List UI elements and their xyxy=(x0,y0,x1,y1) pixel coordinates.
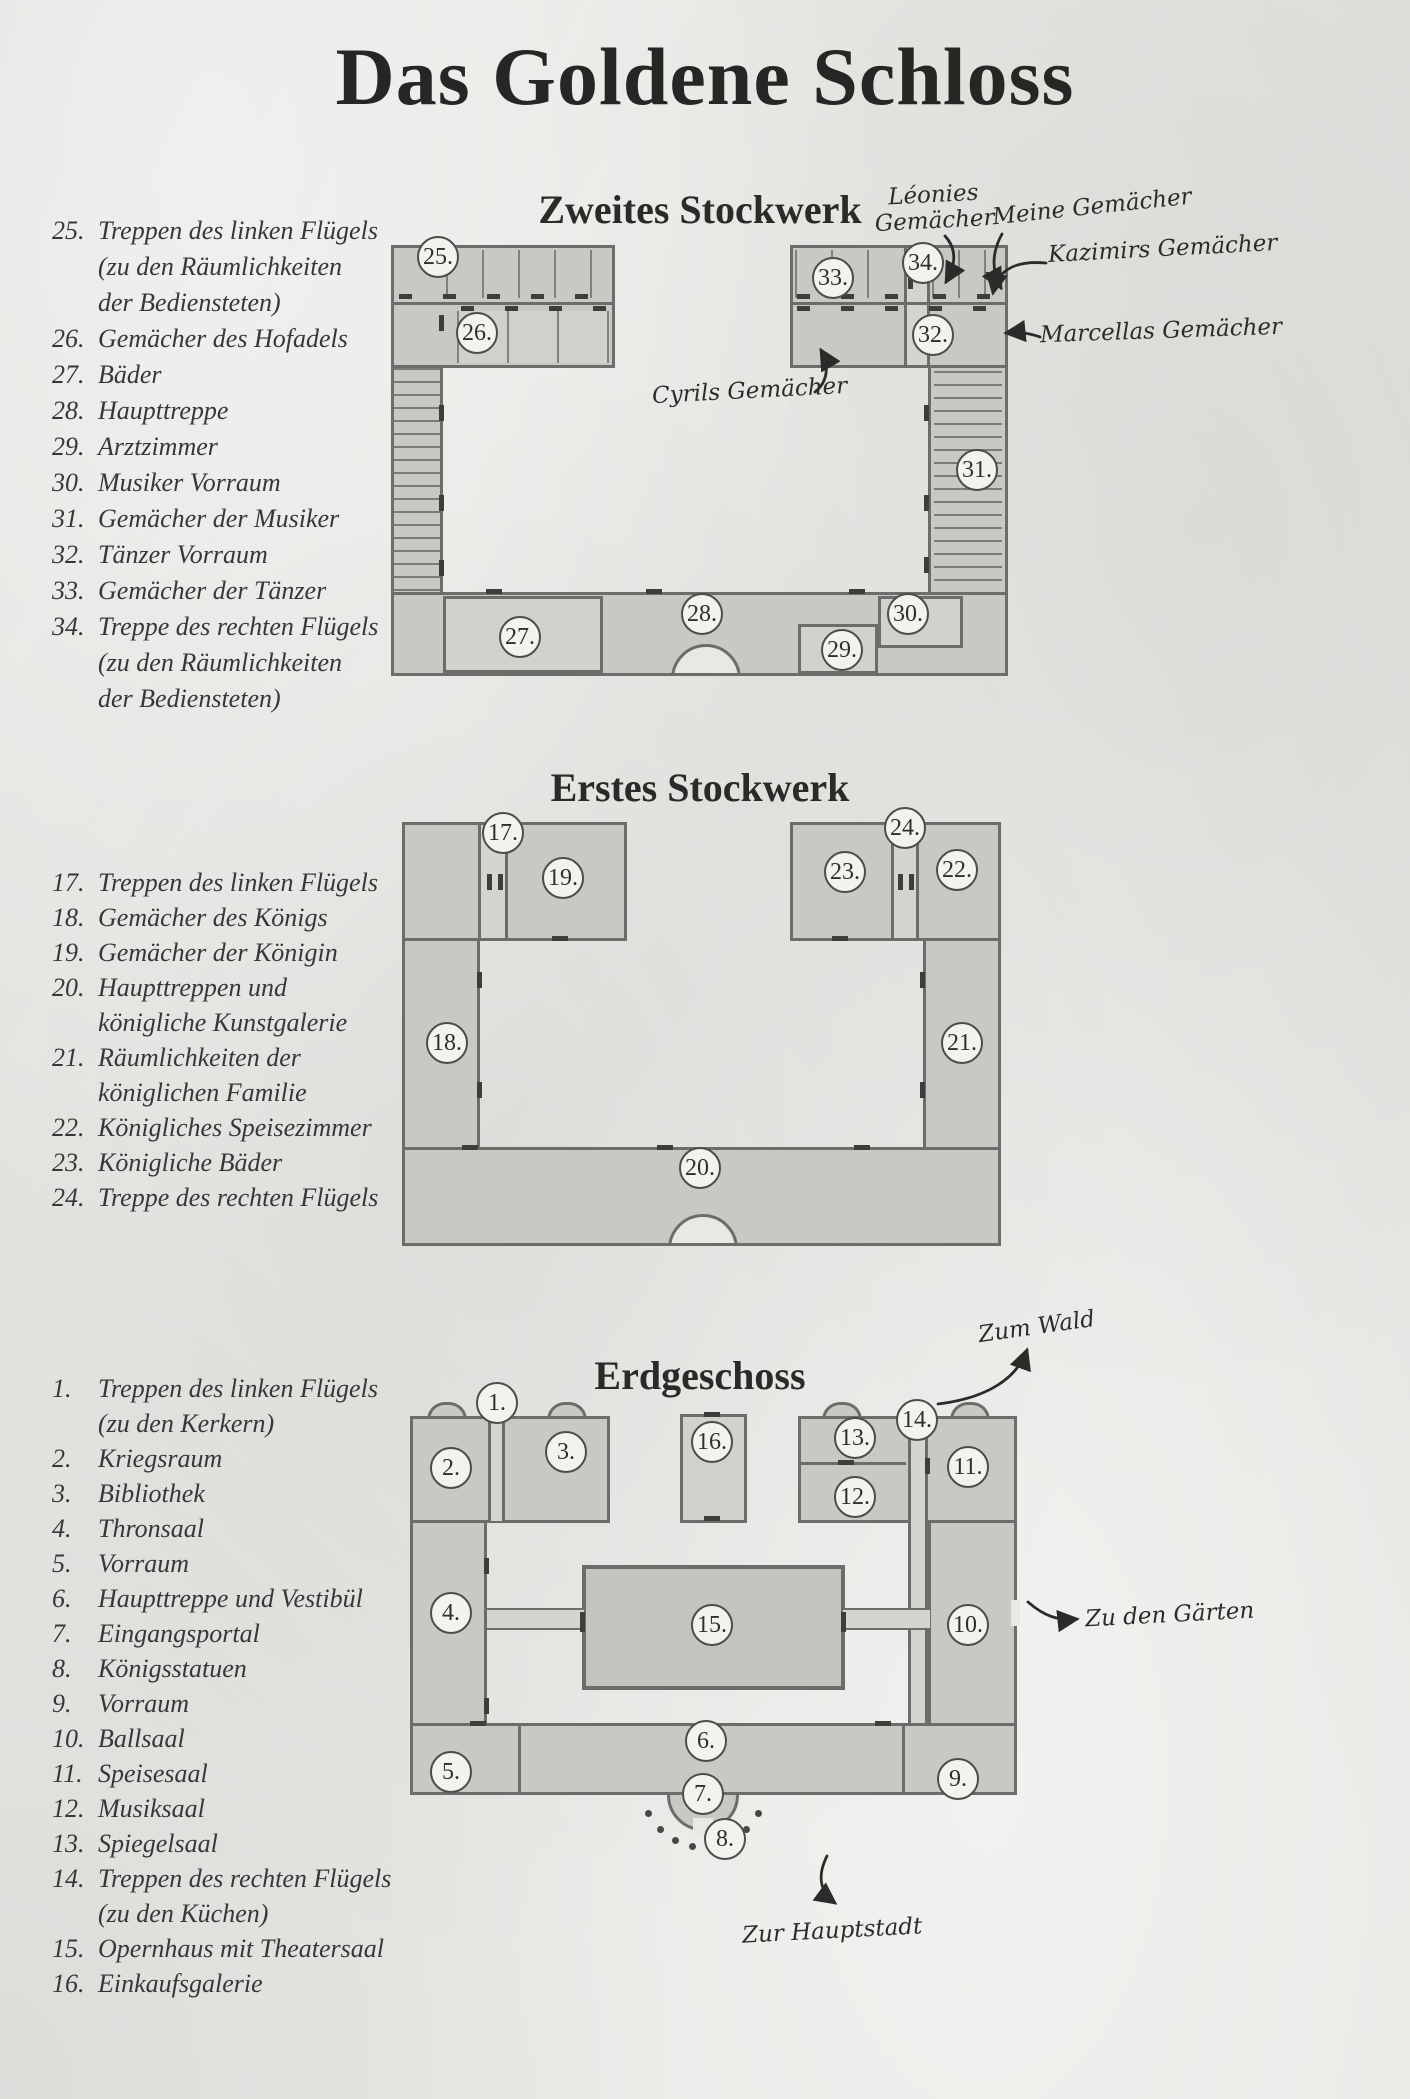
legend-item-number: 33. xyxy=(52,576,98,606)
legend-item-number: 26. xyxy=(52,324,98,354)
room-marker-23: 23. xyxy=(824,851,866,893)
legend-item: 1. Treppen des linken Flügels xyxy=(52,1374,391,1409)
door-marker xyxy=(477,972,482,988)
legend-item-number: 8. xyxy=(52,1654,98,1684)
legend-item: (zu den Küchen) xyxy=(52,1899,391,1934)
legend-item-label: Vorraum xyxy=(98,1549,189,1579)
east-corridor xyxy=(843,1608,930,1630)
legend-item: 22. Königliches Speisezimmer xyxy=(52,1113,378,1148)
legend-item: 8. Königsstatuen xyxy=(52,1654,391,1689)
room-marker-2: 2. xyxy=(430,1447,472,1489)
room-marker-28: 28. xyxy=(681,593,723,635)
legend-item: 15. Opernhaus mit Theatersaal xyxy=(52,1934,391,1969)
door-marker xyxy=(920,972,925,988)
room-marker-10: 10. xyxy=(947,1604,989,1646)
legend-item-label: Vorraum xyxy=(98,1689,189,1719)
annotation-line: Gemächer xyxy=(872,205,997,237)
arch-opening xyxy=(671,644,741,676)
legend-item-number: 18. xyxy=(52,903,98,933)
floor-plan-ground: 1. 2. 3. 4. 5. 6. 7. 8. 9. 10. 11. 12. 1… xyxy=(410,1398,1017,1858)
legend-item-label: Haupttreppe und Vestibül xyxy=(98,1584,363,1614)
room-marker-29: 29. xyxy=(821,629,863,671)
legend-item: 34. Treppe des rechten Flügels xyxy=(52,612,378,648)
floor-title-ground: Erdgeschoss xyxy=(594,1352,805,1399)
statue-dot xyxy=(645,1810,652,1817)
legend-item-label: Bibliothek xyxy=(98,1479,205,1509)
annotation-zu-den-gaerten: Zu den Gärten xyxy=(1084,1598,1254,1633)
door-marker xyxy=(925,1458,930,1474)
door-marker xyxy=(875,1721,891,1726)
room-marker-7: 7. xyxy=(682,1773,724,1815)
legend-item-number: 22. xyxy=(52,1113,98,1143)
legend-item-number: 12. xyxy=(52,1794,98,1824)
statue-dot xyxy=(755,1810,762,1817)
legend-item-label: Gemächer des Königs xyxy=(98,903,328,933)
door-marker xyxy=(484,1558,489,1574)
legend-item-number: 27. xyxy=(52,360,98,390)
legend-item-label: Spiegelsaal xyxy=(98,1829,218,1859)
door-marker xyxy=(841,1612,846,1632)
legend-item-label: königlichen Familie xyxy=(98,1078,307,1108)
legend-item: 3. Bibliothek xyxy=(52,1479,391,1514)
legend-item-label: Treppen des linken Flügels xyxy=(98,216,378,246)
door-marker xyxy=(704,1516,720,1521)
legend-item-label: Gemächer der Musiker xyxy=(98,504,339,534)
legend-item-label: Ballsaal xyxy=(98,1724,185,1754)
room-marker-32: 32. xyxy=(912,314,954,356)
room-marker-14: 14. xyxy=(896,1399,938,1441)
room-marker-11: 11. xyxy=(947,1446,989,1488)
room-marker-8: 8. xyxy=(704,1818,746,1860)
door-markers-row xyxy=(461,306,609,311)
legend-item-label: Kriegsraum xyxy=(98,1444,222,1474)
legend-item: der Bediensteten) xyxy=(52,288,378,324)
door-marker xyxy=(486,589,502,594)
garden-door-opening xyxy=(1011,1600,1020,1626)
legend-item-number: 16. xyxy=(52,1969,98,1999)
legend-item-number: 32. xyxy=(52,540,98,570)
legend-item-number: 29. xyxy=(52,432,98,462)
door-marker xyxy=(439,560,444,576)
legend-item-label: (zu den Räumlichkeiten xyxy=(98,252,342,282)
room-marker-21: 21. xyxy=(941,1022,983,1064)
legend-item-number: 2. xyxy=(52,1444,98,1474)
legend-item-number: 31. xyxy=(52,504,98,534)
legend-item-number: 15. xyxy=(52,1934,98,1964)
statue-dot xyxy=(657,1826,664,1833)
legend-item-label: königliche Kunstgalerie xyxy=(98,1008,347,1038)
annotation-meine-gemaecher: Meine Gemächer xyxy=(991,184,1193,231)
legend-item-label: (zu den Räumlichkeiten xyxy=(98,648,342,678)
room-marker-15: 15. xyxy=(691,1604,733,1646)
legend-item: (zu den Räumlichkeiten xyxy=(52,648,378,684)
door-markers-row xyxy=(797,306,1001,311)
legend-item: 23. Königliche Bäder xyxy=(52,1148,378,1183)
interior-wall xyxy=(793,302,1005,305)
door-marker xyxy=(552,936,568,941)
legend-item-label: Gemächer der Tänzer xyxy=(98,576,326,606)
annotation-leonies-gemaecher: Léonies Gemächer xyxy=(871,179,998,237)
room-marker-3: 3. xyxy=(545,1431,587,1473)
room-marker-17: 17. xyxy=(482,812,524,854)
legend-item-number: 19. xyxy=(52,938,98,968)
door-marker xyxy=(924,495,929,511)
door-markers-row xyxy=(797,294,901,299)
legend-item: 11. Speisesaal xyxy=(52,1759,391,1794)
legend-item: 17. Treppen des linken Flügels xyxy=(52,868,378,903)
legend-item: 31. Gemächer der Musiker xyxy=(52,504,378,540)
legend-item-number: 24. xyxy=(52,1183,98,1213)
room-marker-12: 12. xyxy=(834,1476,876,1518)
room-marker-20: 20. xyxy=(679,1147,721,1189)
legend-item: 20. Haupttreppen und xyxy=(52,973,378,1008)
legend-item: 28. Haupttreppe xyxy=(52,396,378,432)
room-marker-5: 5. xyxy=(430,1751,472,1793)
annotation-kazimirs-gemaecher: Kazimirs Gemächer xyxy=(1047,230,1277,268)
legend-item-number: 17. xyxy=(52,868,98,898)
legend-item-number: 4. xyxy=(52,1514,98,1544)
legend-item-label: Einkaufsgalerie xyxy=(98,1969,263,1999)
room-marker-31: 31. xyxy=(956,449,998,491)
door-marker xyxy=(920,1082,925,1098)
legend-item-number: 21. xyxy=(52,1043,98,1073)
legend-item-label: Opernhaus mit Theatersaal xyxy=(98,1934,384,1964)
room-marker-18: 18. xyxy=(426,1022,468,1064)
legend-item-number: 28. xyxy=(52,396,98,426)
legend-item: 33. Gemächer der Tänzer xyxy=(52,576,378,612)
legend-ground-floor: 1. Treppen des linken Flügels (zu den Ke… xyxy=(52,1374,391,2004)
legend-item-number: 23. xyxy=(52,1148,98,1178)
legend-item-number: 9. xyxy=(52,1689,98,1719)
arrow-zu-den-gaerten xyxy=(1028,1602,1077,1619)
door-marker xyxy=(484,1698,489,1714)
room-marker-26: 26. xyxy=(456,312,498,354)
legend-item-number: 3. xyxy=(52,1479,98,1509)
floor-plan-second: 25. 26. 27. 28. 29. 30. 31. 32. 33. 34. xyxy=(391,245,1008,676)
room-marker-4: 4. xyxy=(430,1592,472,1634)
arrow-zur-hauptstadt xyxy=(821,1856,835,1903)
floor-plan-first: 17. 18. 19. 20. 21. 22. 23. 24. xyxy=(402,822,1001,1246)
legend-item-label: Haupttreppe xyxy=(98,396,228,426)
room-marker-16: 16. xyxy=(691,1421,733,1463)
legend-item: (zu den Räumlichkeiten xyxy=(52,252,378,288)
legend-item-number: 13. xyxy=(52,1829,98,1859)
legend-item-number: 14. xyxy=(52,1864,98,1894)
legend-item-number: 10. xyxy=(52,1724,98,1754)
legend-item-label: Treppe des rechten Flügels xyxy=(98,1183,378,1213)
room-marker-9: 9. xyxy=(937,1758,979,1800)
interior-wall xyxy=(394,302,612,305)
legend-item: 16. Einkaufsgalerie xyxy=(52,1969,391,2004)
legend-item-number: 34. xyxy=(52,612,98,642)
door-marker xyxy=(646,589,662,594)
floor-title-second: Zweites Stockwerk xyxy=(538,186,861,233)
door-marker xyxy=(704,1412,720,1417)
interior-wall xyxy=(518,1725,521,1793)
servant-rooms-top-row xyxy=(446,250,610,298)
legend-second-floor: 25. Treppen des linken Flügels (zu den R… xyxy=(52,216,378,720)
room-marker-33: 33. xyxy=(812,257,854,299)
legend-item: 18. Gemächer des Königs xyxy=(52,903,378,938)
door-markers-row xyxy=(399,294,607,299)
castle-map-page: Das Goldene Schloss Zweites Stockwerk 25… xyxy=(0,0,1410,2099)
legend-item-label: Königliches Speisezimmer xyxy=(98,1113,372,1143)
legend-item-number: 5. xyxy=(52,1549,98,1579)
legend-item: 30. Musiker Vorraum xyxy=(52,468,378,504)
legend-item: 13. Spiegelsaal xyxy=(52,1829,391,1864)
legend-item: 21. Räumlichkeiten der xyxy=(52,1043,378,1078)
door-marker xyxy=(439,405,444,421)
door-marker xyxy=(832,936,848,941)
legend-first-floor: 17. Treppen des linken Flügels 18. Gemäc… xyxy=(52,868,378,1218)
legend-item-number: 25. xyxy=(52,216,98,246)
room-marker-27: 27. xyxy=(499,616,541,658)
legend-item-label: Treppe des rechten Flügels xyxy=(98,612,378,642)
door-marker xyxy=(580,1612,585,1632)
legend-item-label: Speisesaal xyxy=(98,1759,208,1789)
door-marker xyxy=(439,315,444,331)
room-marker-24: 24. xyxy=(884,807,926,849)
legend-item: 2. Kriegsraum xyxy=(52,1444,391,1479)
annotation-marcellas-gemaecher: Marcellas Gemächer xyxy=(1040,314,1283,348)
door-marker xyxy=(924,557,929,573)
legend-item: 12. Musiksaal xyxy=(52,1794,391,1829)
legend-item-label: Arztzimmer xyxy=(98,432,218,462)
door-marker xyxy=(838,1460,854,1465)
legend-item-label: der Bediensteten) xyxy=(98,684,281,714)
legend-item: 5. Vorraum xyxy=(52,1549,391,1584)
legend-item: königlichen Familie xyxy=(52,1078,378,1113)
door-marker xyxy=(924,405,929,421)
door-marker xyxy=(898,874,903,890)
legend-item-label: Treppen des linken Flügels xyxy=(98,868,378,898)
legend-item: (zu den Kerkern) xyxy=(52,1409,391,1444)
room-marker-22: 22. xyxy=(936,849,978,891)
door-marker xyxy=(849,589,865,594)
door-marker xyxy=(657,1145,673,1150)
legend-item-label: (zu den Kerkern) xyxy=(98,1409,274,1439)
legend-item-number: 1. xyxy=(52,1374,98,1404)
room-marker-1: 1. xyxy=(476,1382,518,1424)
legend-item-label: der Bediensteten) xyxy=(98,288,281,318)
legend-item-label: Königsstatuen xyxy=(98,1654,247,1684)
room-marker-34: 34. xyxy=(902,242,944,284)
arrow-to-marcellas-room xyxy=(1006,332,1040,337)
legend-item-number: 7. xyxy=(52,1619,98,1649)
legend-item-label: Bäder xyxy=(98,360,162,390)
legend-item: 27. Bäder xyxy=(52,360,378,396)
legend-item-label: Musiker Vorraum xyxy=(98,468,281,498)
legend-item: königliche Kunstgalerie xyxy=(52,1008,378,1043)
room-marker-30: 30. xyxy=(887,593,929,635)
legend-item-number: 6. xyxy=(52,1584,98,1614)
page-title: Das Goldene Schloss xyxy=(336,30,1075,124)
room-marker-19: 19. xyxy=(542,857,584,899)
legend-item: 10. Ballsaal xyxy=(52,1724,391,1759)
legend-item-number: 11. xyxy=(52,1759,98,1789)
annotation-zur-hauptstadt: Zur Hauptstadt xyxy=(741,1913,922,1948)
legend-item: 4. Thronsaal xyxy=(52,1514,391,1549)
door-marker xyxy=(854,1145,870,1150)
legend-item: 24. Treppe des rechten Flügels xyxy=(52,1183,378,1218)
arrow-zum-wald xyxy=(938,1350,1027,1404)
interior-wall xyxy=(902,1725,905,1793)
legend-item-label: (zu den Küchen) xyxy=(98,1899,268,1929)
legend-item: 29. Arztzimmer xyxy=(52,432,378,468)
dungeon-stair-corridor xyxy=(488,1418,505,1521)
legend-item-label: Thronsaal xyxy=(98,1514,204,1544)
door-marker xyxy=(470,1721,486,1726)
arch-opening xyxy=(668,1214,738,1246)
legend-item-number: 30. xyxy=(52,468,98,498)
west-corridor xyxy=(487,1608,584,1630)
floor-title-first: Erstes Stockwerk xyxy=(551,764,850,811)
legend-item-label: Musiksaal xyxy=(98,1794,205,1824)
door-markers-row xyxy=(933,294,1003,299)
legend-item-number: 20. xyxy=(52,973,98,1003)
legend-item-label: Tänzer Vorraum xyxy=(98,540,268,570)
legend-item-label: Haupttreppen und xyxy=(98,973,287,1003)
door-marker xyxy=(477,1082,482,1098)
door-marker xyxy=(487,874,492,890)
legend-item-label: Eingangsportal xyxy=(98,1619,260,1649)
statue-dot xyxy=(689,1843,696,1850)
legend-item-label: Treppen des linken Flügels xyxy=(98,1374,378,1404)
room-marker-13: 13. xyxy=(834,1417,876,1459)
legend-item-label: Räumlichkeiten der xyxy=(98,1043,301,1073)
legend-item: 26. Gemächer des Hofadels xyxy=(52,324,378,360)
door-marker xyxy=(439,495,444,511)
door-marker xyxy=(462,1145,478,1150)
door-marker xyxy=(909,874,914,890)
annotation-zum-wald: Zum Wald xyxy=(977,1306,1097,1348)
statue-dot xyxy=(672,1837,679,1844)
legend-item: 7. Eingangsportal xyxy=(52,1619,391,1654)
door-marker xyxy=(498,874,503,890)
legend-item: der Bediensteten) xyxy=(52,684,378,720)
legend-item-label: Gemächer der Königin xyxy=(98,938,338,968)
legend-item-label: Königliche Bäder xyxy=(98,1148,282,1178)
legend-item: 14. Treppen des rechten Flügels xyxy=(52,1864,391,1899)
legend-item: 32. Tänzer Vorraum xyxy=(52,540,378,576)
legend-item: 25. Treppen des linken Flügels xyxy=(52,216,378,252)
room-marker-25: 25. xyxy=(417,236,459,278)
room-marker-6: 6. xyxy=(685,1720,727,1762)
legend-item: 9. Vorraum xyxy=(52,1689,391,1724)
legend-item: 6. Haupttreppe und Vestibül xyxy=(52,1584,391,1619)
legend-item-label: Gemächer des Hofadels xyxy=(98,324,348,354)
legend-item: 19. Gemächer der Königin xyxy=(52,938,378,973)
legend-item-label: Treppen des rechten Flügels xyxy=(98,1864,391,1894)
